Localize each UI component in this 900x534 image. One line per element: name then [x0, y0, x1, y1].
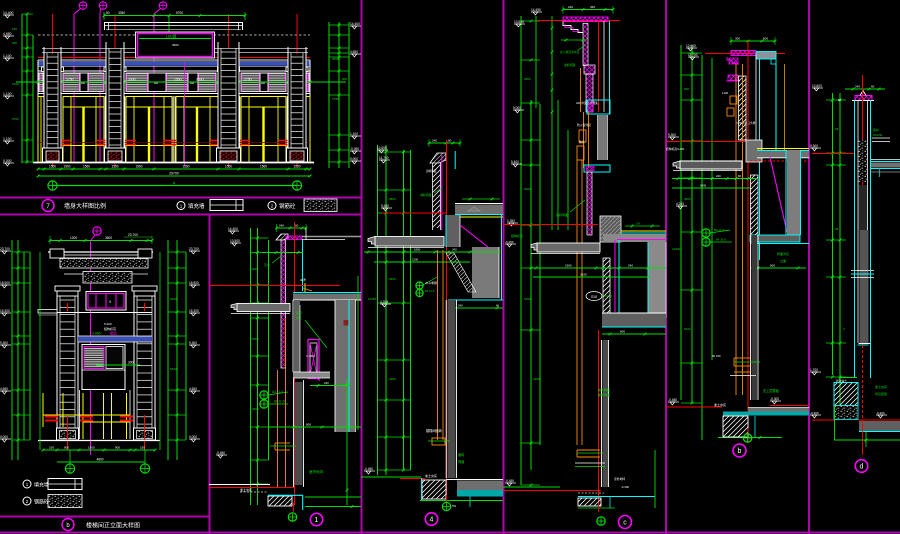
svg-text:4.200: 4.200	[676, 202, 684, 206]
svg-text:1560: 1560	[225, 165, 232, 169]
svg-text:600: 600	[770, 264, 775, 268]
svg-text:3600: 3600	[684, 197, 691, 201]
svg-text:0.000: 0.000	[350, 157, 358, 161]
svg-text:填充墙: 填充墙	[188, 202, 205, 210]
svg-text:1.700: 1.700	[810, 368, 818, 372]
svg-text:2100: 2100	[412, 258, 419, 262]
svg-text:12.600: 12.600	[812, 84, 822, 88]
svg-text:4.650: 4.650	[350, 50, 358, 54]
svg-text:900: 900	[12, 41, 17, 45]
svg-text:15.300: 15.300	[0, 309, 10, 313]
svg-text:1750: 1750	[66, 78, 74, 82]
svg-text:2150: 2150	[12, 82, 19, 86]
svg-text:28: 28	[835, 127, 839, 131]
svg-text:40厚: 40厚	[300, 278, 306, 282]
svg-text:3600: 3600	[170, 297, 177, 301]
svg-text:-0.300: -0.300	[770, 397, 779, 401]
svg-text:墙外侧贴: 墙外侧贴	[598, 387, 610, 392]
svg-text:4.650: 4.650	[189, 387, 197, 391]
svg-text:23.700: 23.700	[189, 247, 199, 251]
svg-text:3: 3	[109, 300, 111, 304]
svg-text:结构标高: 结构标高	[511, 233, 523, 238]
svg-text:2800: 2800	[389, 197, 396, 201]
svg-text:9.300: 9.300	[381, 204, 389, 208]
svg-text:36: 36	[835, 227, 839, 231]
svg-text:素土夯实: 素土夯实	[240, 487, 252, 492]
svg-text:9.300: 9.300	[668, 133, 676, 137]
svg-text:5%: 5%	[452, 504, 457, 508]
svg-text:1560: 1560	[293, 165, 300, 169]
svg-text:240: 240	[716, 174, 721, 178]
svg-text:钢筋砼: 钢筋砼	[279, 202, 296, 210]
svg-text:d: d	[860, 464, 864, 471]
svg-text:60: 60	[496, 304, 500, 308]
svg-text:-0.450: -0.450	[364, 467, 373, 471]
svg-text:1200: 1200	[70, 236, 77, 240]
svg-text:18.900: 18.900	[189, 281, 199, 285]
svg-text:LED屏: LED屏	[166, 35, 177, 39]
svg-text:240: 240	[458, 304, 463, 308]
svg-text:1560: 1560	[182, 165, 189, 169]
svg-text:4250: 4250	[389, 377, 396, 381]
svg-text:14.400: 14.400	[228, 227, 238, 231]
svg-text:12.600: 12.600	[686, 44, 696, 48]
svg-text:1.100: 1.100	[350, 132, 358, 136]
svg-text:C-1821: C-1821	[306, 354, 316, 358]
svg-text:1500: 1500	[88, 446, 95, 450]
svg-text:240: 240	[568, 5, 573, 9]
svg-text:300: 300	[735, 37, 740, 41]
svg-text:240: 240	[452, 248, 457, 252]
svg-text:150: 150	[49, 446, 54, 450]
svg-text:0.000: 0.000	[3, 159, 12, 163]
svg-text:11050: 11050	[368, 297, 376, 301]
svg-text:c: c	[623, 520, 627, 527]
svg-text:150: 150	[12, 27, 17, 31]
svg-text:900: 900	[684, 87, 689, 91]
svg-text:600: 600	[306, 423, 311, 427]
svg-text:素土夯实: 素土夯实	[875, 384, 887, 389]
svg-text:-0.450: -0.450	[668, 398, 677, 402]
svg-text:1.100: 1.100	[3, 92, 12, 96]
svg-text:钢筋砼: 钢筋砼	[34, 499, 49, 506]
svg-text:14.400: 14.400	[350, 22, 360, 26]
svg-text:饰面: 饰面	[458, 459, 464, 464]
svg-text:3600: 3600	[105, 236, 112, 240]
svg-text:23.700: 23.700	[0, 247, 10, 251]
svg-text:结构标高9.250: 结构标高9.250	[666, 147, 685, 151]
svg-text:-0.050: -0.050	[350, 147, 359, 151]
svg-text:留洞: 留洞	[296, 311, 302, 315]
svg-text:5700: 5700	[12, 117, 19, 121]
svg-text:60: 60	[738, 174, 742, 178]
svg-text:13.500: 13.500	[514, 20, 524, 24]
svg-text:5400: 5400	[524, 297, 531, 301]
svg-text:3600: 3600	[252, 337, 259, 341]
svg-text:0.000: 0.000	[0, 435, 8, 439]
svg-text:240: 240	[855, 85, 860, 89]
svg-text:饰面详见: 饰面详见	[777, 251, 789, 256]
svg-text:900: 900	[342, 77, 347, 81]
svg-text:-0.300: -0.300	[810, 411, 819, 415]
svg-text:1560: 1560	[260, 165, 267, 169]
svg-text:360: 360	[590, 5, 595, 9]
svg-text:240: 240	[432, 139, 437, 143]
svg-text:4.650: 4.650	[0, 387, 8, 391]
svg-text:100x50: 100x50	[873, 133, 883, 137]
svg-text:50 150: 50 150	[712, 354, 721, 358]
svg-text:泛水: 泛水	[264, 262, 270, 267]
svg-text:64 J1-5: 64 J1-5	[425, 289, 435, 293]
svg-text:1.100: 1.100	[3, 137, 12, 141]
svg-text:23.700: 23.700	[128, 233, 138, 237]
svg-text:结构标高: 结构标高	[104, 326, 116, 331]
svg-text:-0.450: -0.450	[505, 240, 514, 244]
svg-text:1.100: 1.100	[3, 54, 12, 58]
svg-text:1560: 1560	[49, 165, 56, 169]
svg-text:18.900: 18.900	[0, 281, 10, 285]
svg-text:1560: 1560	[135, 165, 142, 169]
svg-text:4: 4	[430, 517, 434, 524]
svg-text:9.000: 9.000	[513, 106, 521, 110]
svg-text:1.350: 1.350	[507, 219, 515, 223]
svg-text:64 J1-5: 64 J1-5	[274, 400, 285, 404]
svg-text:13.500: 13.500	[230, 239, 240, 243]
svg-text:竖向: 竖向	[873, 128, 879, 132]
svg-text:2000: 2000	[196, 78, 204, 82]
svg-text:60: 60	[448, 139, 452, 143]
svg-text:2400: 2400	[700, 184, 707, 188]
svg-text:240: 240	[324, 381, 329, 385]
svg-text:3550: 3550	[332, 57, 339, 61]
svg-text:详见结施: 详见结施	[875, 391, 887, 396]
svg-text:60: 60	[295, 224, 299, 228]
svg-text:室外地坪: 室外地坪	[614, 477, 625, 481]
svg-text:0.000: 0.000	[189, 435, 197, 439]
svg-text:4800: 4800	[96, 458, 103, 462]
svg-text:立面: 立面	[780, 258, 786, 263]
svg-text:1800: 1800	[414, 248, 421, 252]
svg-text:3.060: 3.060	[92, 332, 101, 336]
svg-text:5400: 5400	[170, 367, 177, 371]
svg-text:15.300: 15.300	[189, 309, 199, 313]
svg-text:面砖饰面: 面砖饰面	[598, 392, 610, 397]
svg-text:12.600: 12.600	[377, 146, 387, 150]
svg-text:4.650: 4.650	[3, 32, 12, 36]
svg-text:1%: 1%	[636, 222, 641, 226]
svg-text:11.700: 11.700	[688, 53, 698, 57]
svg-text:5750: 5750	[332, 97, 339, 101]
svg-text:2800: 2800	[524, 77, 531, 81]
svg-text:9.300: 9.300	[189, 341, 197, 345]
svg-text:4650: 4650	[252, 407, 259, 411]
svg-text:涂料饰面: 涂料饰面	[564, 63, 575, 67]
svg-text:-0.450: -0.450	[216, 451, 225, 455]
svg-text:9700: 9700	[176, 11, 183, 15]
svg-text:-0.450: -0.450	[505, 479, 514, 483]
svg-text:-0.300: -0.300	[621, 485, 629, 489]
svg-text:600: 600	[620, 330, 625, 334]
svg-text:900: 900	[64, 446, 69, 450]
svg-text:240: 240	[279, 224, 284, 228]
svg-text:60: 60	[871, 85, 875, 89]
svg-text:1560: 1560	[83, 165, 90, 169]
svg-text:4.200: 4.200	[380, 300, 388, 304]
svg-text:1750: 1750	[244, 78, 252, 82]
svg-text:B9 J1-5: B9 J1-5	[714, 228, 725, 232]
svg-text:64 J1-5: 64 J1-5	[716, 238, 726, 242]
svg-text:50: 50	[838, 98, 842, 102]
svg-text:9.300: 9.300	[0, 341, 8, 345]
svg-text:3600: 3600	[524, 187, 531, 191]
svg-text:5400: 5400	[684, 327, 691, 331]
svg-text:女儿墙泛水详见: 女儿墙泛水详见	[560, 50, 580, 54]
svg-text:防火窗详见: 防火窗详见	[577, 123, 591, 127]
svg-text:14.450: 14.450	[531, 8, 541, 12]
svg-text:240: 240	[628, 264, 633, 268]
svg-text:室外地坪: 室外地坪	[309, 469, 324, 474]
svg-text:b: b	[738, 448, 742, 455]
svg-text:2100: 2100	[580, 273, 587, 277]
svg-text:11.700: 11.700	[379, 156, 389, 160]
svg-text:1560: 1560	[63, 165, 70, 169]
svg-text:涂料饰面: 涂料饰面	[420, 193, 431, 197]
svg-text:1: 1	[315, 517, 319, 524]
svg-text:楼梯间正立面大样图: 楼梯间正立面大样图	[86, 522, 140, 530]
svg-text:填充墙: 填充墙	[34, 482, 49, 489]
svg-text:14.400: 14.400	[3, 11, 13, 15]
svg-text:1560: 1560	[111, 165, 118, 169]
svg-text:600: 600	[763, 37, 768, 41]
svg-text:9.300: 9.300	[810, 144, 818, 148]
svg-text:3400: 3400	[389, 277, 396, 281]
svg-text:1500: 1500	[174, 78, 182, 82]
svg-text:屋面: 屋面	[110, 331, 117, 336]
svg-text:300: 300	[128, 361, 134, 365]
svg-text:-0.300: -0.300	[876, 411, 885, 415]
svg-text:楼梯间面砖: 楼梯间面砖	[426, 428, 443, 433]
svg-text:A: A	[173, 180, 176, 185]
svg-text:50: 50	[106, 11, 110, 15]
svg-text:G10: G10	[591, 295, 598, 299]
svg-text:涂料饰面: 涂料饰面	[556, 212, 568, 217]
svg-text:1500: 1500	[565, 264, 572, 268]
svg-text:2000: 2000	[128, 78, 136, 82]
svg-text:3350: 3350	[118, 11, 125, 15]
svg-text:4200: 4200	[533, 377, 540, 381]
svg-text:29700: 29700	[169, 172, 179, 176]
svg-text:玻璃: 玻璃	[579, 140, 585, 144]
svg-text:150: 150	[140, 446, 145, 450]
svg-text:1100: 1100	[722, 91, 728, 95]
svg-text:J5-J2粉刷: J5-J2粉刷	[425, 281, 438, 285]
svg-text:面砖: 面砖	[458, 452, 465, 457]
svg-text:900: 900	[115, 446, 120, 450]
svg-text:5.400: 5.400	[511, 160, 519, 164]
svg-text:5.200: 5.200	[104, 322, 112, 326]
svg-text:详见: 详见	[296, 316, 302, 320]
svg-text:C2515详见大样: C2515详见大样	[736, 121, 756, 125]
svg-text:3500: 3500	[172, 43, 179, 47]
svg-text:涂料饰面: 涂料饰面	[426, 169, 437, 173]
svg-text:素土夯实: 素土夯实	[425, 473, 437, 478]
svg-text:至上层楼面: 至上层楼面	[763, 388, 779, 393]
svg-text:900: 900	[252, 267, 257, 271]
svg-text:墙身大样图比例: 墙身大样图比例	[64, 202, 106, 210]
svg-text:12600: 12600	[672, 247, 681, 251]
svg-text:素土夯实: 素土夯实	[714, 402, 726, 407]
